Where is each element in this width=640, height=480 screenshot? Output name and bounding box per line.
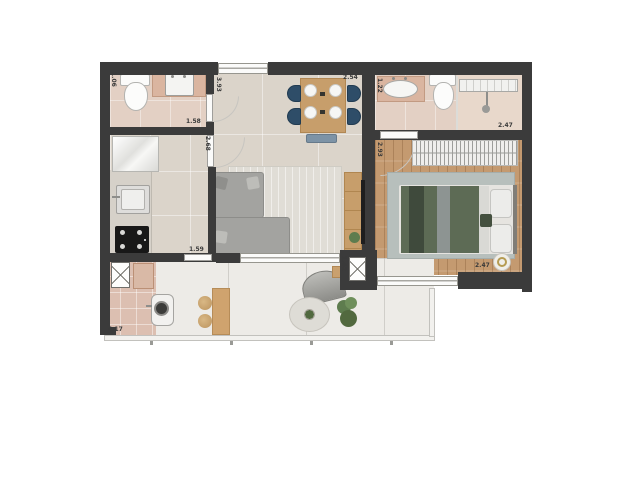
bar-stool-2 [198, 314, 212, 328]
railing-post-1 [150, 341, 153, 345]
slider-bedroom-balcony [377, 276, 458, 286]
kitchen-sink-basin [121, 189, 145, 210]
burner-4 [137, 244, 142, 249]
wall-bath1-bottom [100, 127, 214, 135]
dining-bench [306, 134, 337, 143]
sofa-pillow-2 [246, 176, 260, 190]
shower-glass-divider [456, 76, 458, 130]
cooktop-knob [144, 239, 146, 241]
bed-stripe-dark [409, 186, 424, 253]
wall-right [522, 62, 532, 292]
shower-shelf [459, 79, 518, 92]
bed-tray [480, 214, 492, 227]
shower-head [482, 105, 490, 113]
sink-2 [383, 80, 418, 98]
label-balcony-door-width: 1.62 [340, 256, 347, 271]
pouf-ring [497, 257, 507, 267]
label-service-length: 4.17 [108, 326, 123, 333]
label-bedroom-width: 2.93 [376, 142, 383, 157]
toilet-2-bowl [433, 82, 454, 110]
burner-2 [137, 230, 142, 235]
label-bath2-width: 1.22 [376, 78, 383, 93]
floor-plan: 1.06 1.58 3.93 2.68 2.54 1.22 2.47 2.93 … [0, 0, 640, 480]
kitchen-faucet [112, 196, 120, 198]
balcony-railing-bottom [104, 335, 435, 341]
service-cabinet [133, 263, 154, 289]
dining-chair-1 [287, 85, 301, 102]
toilet-1-bowl [124, 82, 148, 111]
plate-1 [304, 84, 317, 97]
balcony-shaft-column [349, 257, 366, 281]
label-hall-height-top: 3.93 [215, 77, 222, 92]
bar-stool-1 [198, 296, 212, 310]
faucet-2-dot-left [392, 77, 395, 80]
door-bedroom [380, 131, 418, 139]
label-bedroom-length: 2.47 [475, 262, 490, 269]
bed-pillow-2 [490, 224, 512, 253]
label-bath1-width: 1.06 [110, 72, 117, 87]
wall-dining-bath2 [362, 70, 375, 132]
wall-bedroom-bottom [458, 272, 532, 289]
bed-throw [437, 186, 450, 253]
door-service-opening [184, 254, 212, 261]
wall-living-balcony [216, 253, 240, 263]
plate-3 [304, 106, 317, 119]
balcony-plant-leaf-2 [345, 297, 357, 309]
bar-counter [212, 288, 230, 335]
label-bath1-length: 1.58 [186, 118, 201, 125]
burner-1 [120, 230, 125, 235]
faucet-2-dot-right [404, 77, 407, 80]
console-plant [349, 232, 360, 243]
sink-1 [165, 73, 194, 96]
plate-4 [329, 106, 342, 119]
balcony-plant-leaf-3 [340, 310, 357, 327]
table-decor-1 [320, 92, 325, 96]
label-dining-width: 2.54 [343, 74, 358, 81]
faucet-1-dot-left [171, 75, 174, 78]
label-hall-height-mid: 2.68 [204, 136, 211, 151]
balcony-railing-right [429, 288, 435, 337]
laundry-tub-drum [154, 301, 169, 316]
table-decor-2 [320, 110, 325, 114]
wall-hall [208, 167, 216, 262]
headboard [513, 185, 517, 254]
door-bath1 [206, 94, 213, 122]
burner-3 [120, 244, 125, 249]
railing-post-4 [390, 341, 393, 345]
bed-pillow-1 [490, 189, 512, 218]
shower-box [112, 136, 159, 172]
wall-top-right [268, 62, 532, 75]
dining-chair-2 [287, 108, 301, 125]
floor-balcony [150, 258, 434, 338]
faucet-1-dot-right [183, 75, 186, 78]
tv [361, 180, 365, 244]
laundry-tap [146, 305, 152, 307]
wall-bath1-right-upper [206, 62, 214, 94]
plate-2 [329, 84, 342, 97]
service-shaft-column [111, 262, 130, 288]
sofa-pillow-3 [214, 230, 228, 244]
railing-post-2 [230, 341, 233, 345]
slider-living-balcony [240, 253, 340, 263]
label-kitchen-length: 1.59 [189, 246, 204, 253]
wall-left [100, 62, 110, 334]
railing-post-3 [310, 341, 313, 345]
wardrobe [412, 140, 518, 166]
wall-top-left [100, 62, 218, 75]
window-top [218, 63, 268, 74]
label-bath2-length: 2.47 [498, 122, 513, 129]
rug-plant [304, 309, 315, 320]
